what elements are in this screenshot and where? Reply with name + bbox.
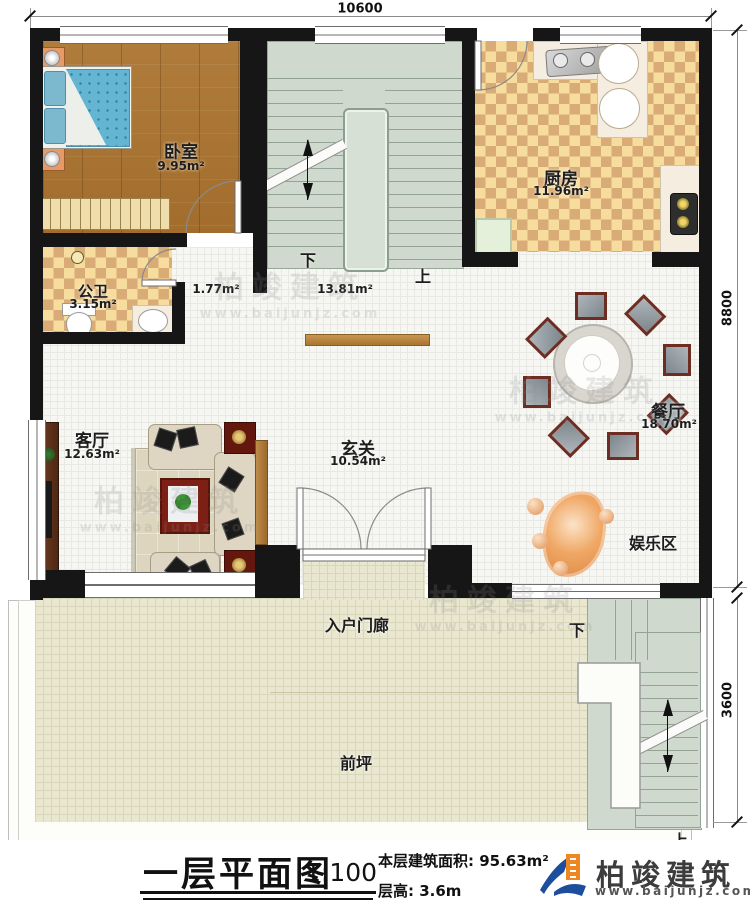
bathroom-area: 3.15m²	[69, 297, 116, 311]
dim-ext	[30, 8, 31, 28]
dim-right-lower-label: 3600	[721, 682, 736, 718]
front-yard-label: 前坪	[340, 750, 372, 774]
brand-logo-icon	[536, 846, 592, 902]
dining-area: 18.70m²	[641, 417, 697, 431]
exterior-stair-down-label: 下	[569, 617, 585, 641]
stair-down-label: 下	[300, 247, 316, 271]
title-underline	[143, 898, 373, 900]
living-area: 12.63m²	[64, 447, 120, 461]
dim-ext	[713, 822, 747, 823]
floor-height-note: 层高: 3.6m	[378, 880, 461, 901]
dim-line-right-upper	[737, 30, 738, 586]
bedroom-area: 9.95m²	[157, 159, 204, 173]
entertainment-label: 娱乐区	[629, 530, 677, 554]
dim-line-right-lower	[737, 598, 738, 822]
floor-plan-sheet: 10600 8800 3600 卧室 9.95m² 公卫 3.15m² 厨房 1…	[0, 0, 750, 913]
stair-up-label: 上	[415, 263, 431, 287]
dim-top-label: 10600	[337, 2, 382, 17]
dim-ext	[711, 8, 712, 28]
title-underline	[140, 891, 376, 894]
porch-label: 入户门廊	[325, 612, 389, 636]
plan-scale: 1:100	[305, 858, 377, 887]
corridor-area: 1.77m²	[192, 282, 239, 296]
hall-area: 10.54m²	[330, 454, 386, 468]
brand-website: www.baijunjz.com	[595, 884, 750, 898]
stair-area: 13.81m²	[317, 282, 373, 296]
dim-right-upper-label: 8800	[721, 290, 736, 326]
dim-ext	[713, 30, 747, 31]
kitchen-area: 11.96m²	[533, 184, 589, 198]
footer: 一层平面图 1:100 本层建筑面积: 95.63m² 层高: 3.6m 柏竣建…	[0, 840, 750, 913]
floor-area-note: 本层建筑面积: 95.63m²	[378, 850, 549, 871]
dim-ext	[713, 587, 747, 588]
